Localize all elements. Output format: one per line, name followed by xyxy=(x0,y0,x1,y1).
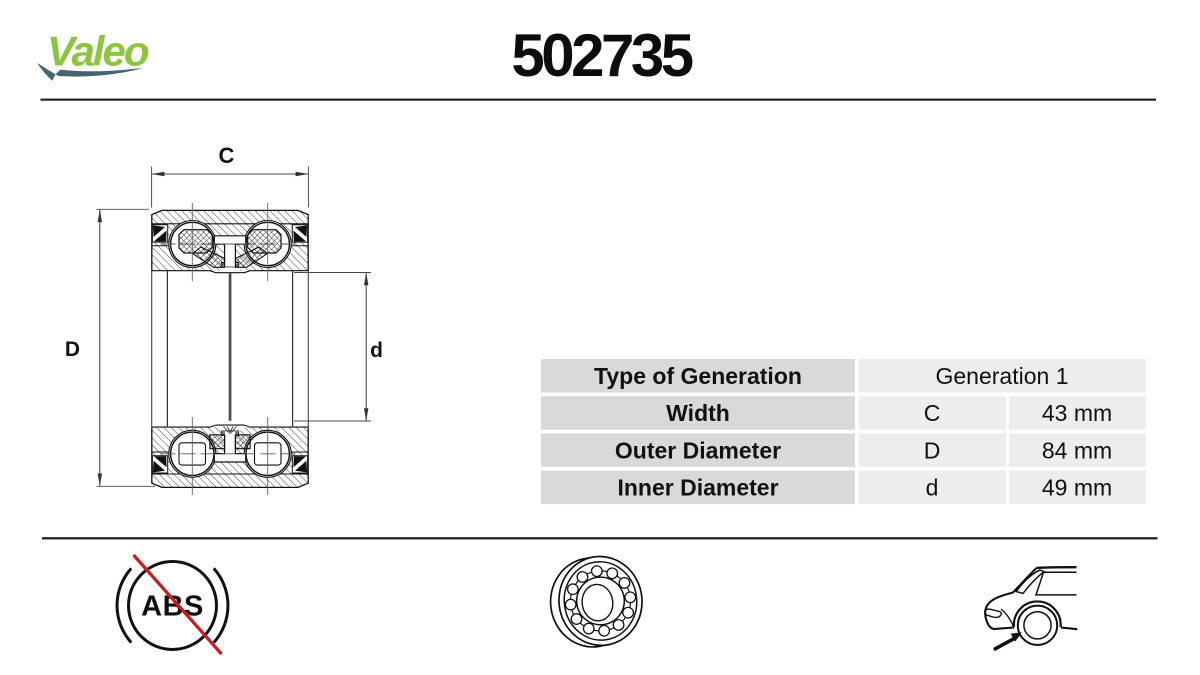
svg-text:D: D xyxy=(924,437,941,463)
svg-text:D: D xyxy=(65,338,80,361)
svg-text:502735: 502735 xyxy=(511,22,692,89)
svg-text:43 mm: 43 mm xyxy=(1042,400,1112,426)
svg-text:Valeo: Valeo xyxy=(47,28,149,75)
svg-text:d: d xyxy=(926,475,939,501)
svg-text:C: C xyxy=(924,400,941,426)
svg-text:84 mm: 84 mm xyxy=(1042,437,1112,463)
svg-text:ABS: ABS xyxy=(141,591,204,623)
svg-text:Inner Diameter: Inner Diameter xyxy=(617,475,778,501)
svg-text:C: C xyxy=(219,143,235,168)
svg-text:d: d xyxy=(370,339,383,362)
svg-text:Type of Generation: Type of Generation xyxy=(594,363,802,389)
svg-text:Generation 1: Generation 1 xyxy=(936,363,1069,389)
svg-text:Width: Width xyxy=(666,400,730,426)
svg-text:Outer Diameter: Outer Diameter xyxy=(615,437,781,463)
svg-text:49 mm: 49 mm xyxy=(1042,475,1112,501)
